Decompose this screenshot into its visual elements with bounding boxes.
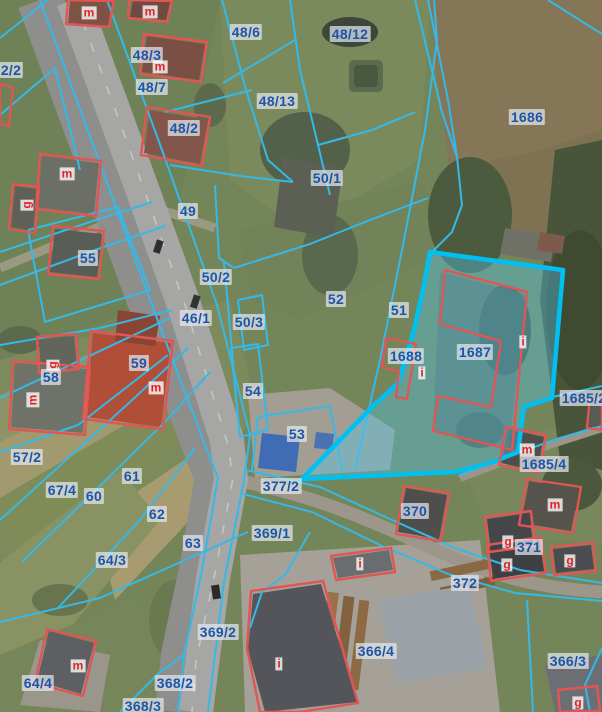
building-label-m[interactable]: m: [143, 5, 158, 18]
building-label-m[interactable]: m: [520, 443, 535, 456]
building-label-g[interactable]: g: [46, 359, 59, 370]
parcel-label-371[interactable]: 371: [515, 539, 543, 555]
parcel-label-369-2[interactable]: 369/2: [198, 624, 239, 640]
parcel-label-46-1[interactable]: 46/1: [180, 310, 212, 326]
building-label-m[interactable]: m: [82, 6, 97, 19]
building-label-i[interactable]: i: [418, 366, 425, 379]
labels-layer: 2/248/348/648/1248/748/1348/2168650/1495…: [0, 0, 602, 712]
parcel-label-368-3[interactable]: 368/3: [123, 698, 164, 712]
parcel-label-48-12[interactable]: 48/12: [330, 26, 371, 42]
parcel-label-54[interactable]: 54: [243, 383, 263, 399]
parcel-label-63[interactable]: 63: [183, 535, 203, 551]
parcel-label-50-2[interactable]: 50/2: [200, 269, 232, 285]
parcel-label-49[interactable]: 49: [178, 203, 198, 219]
building-label-g[interactable]: g: [501, 558, 512, 571]
parcel-label-1687[interactable]: 1687: [457, 344, 493, 360]
parcel-label-51[interactable]: 51: [389, 302, 409, 318]
parcel-label-58[interactable]: 58: [41, 369, 61, 385]
building-label-g[interactable]: g: [20, 199, 33, 210]
building-label-m[interactable]: m: [149, 381, 164, 394]
building-label-i[interactable]: i: [519, 335, 526, 348]
parcel-label-368-2[interactable]: 368/2: [155, 675, 196, 691]
building-label-g[interactable]: g: [502, 535, 513, 548]
parcel-label-55[interactable]: 55: [78, 250, 98, 266]
parcel-label-1685-4[interactable]: 1685/4: [520, 456, 569, 472]
parcel-label-377-2[interactable]: 377/2: [261, 478, 302, 494]
parcel-label-48-6[interactable]: 48/6: [230, 24, 262, 40]
parcel-label-1686[interactable]: 1686: [509, 109, 545, 125]
building-label-g[interactable]: g: [564, 554, 575, 567]
parcel-label-372[interactable]: 372: [451, 575, 479, 591]
parcel-label-48-13[interactable]: 48/13: [257, 93, 298, 109]
parcel-label-64-4[interactable]: 64/4: [22, 675, 54, 691]
building-label-i[interactable]: i: [356, 557, 363, 570]
parcel-label-50-1[interactable]: 50/1: [311, 170, 343, 186]
parcel-label-48-2[interactable]: 48/2: [168, 120, 200, 136]
parcel-label-48-7[interactable]: 48/7: [136, 79, 168, 95]
cadastral-map[interactable]: 2/248/348/648/1248/748/1348/2168650/1495…: [0, 0, 602, 712]
parcel-label-53[interactable]: 53: [287, 426, 307, 442]
parcel-label-67-4[interactable]: 67/4: [46, 482, 78, 498]
parcel-label-369-1[interactable]: 369/1: [252, 525, 293, 541]
building-label-m[interactable]: m: [548, 498, 563, 511]
parcel-label-52[interactable]: 52: [326, 291, 346, 307]
parcel-label-61[interactable]: 61: [122, 468, 142, 484]
parcel-label-59[interactable]: 59: [129, 355, 149, 371]
parcel-label-1685-2[interactable]: 1685/2: [560, 390, 602, 406]
building-label-i[interactable]: i: [275, 657, 282, 670]
parcel-label-50-3[interactable]: 50/3: [233, 314, 265, 330]
parcel-label-64-3[interactable]: 64/3: [96, 552, 128, 568]
parcel-label-60[interactable]: 60: [84, 488, 104, 504]
building-label-g[interactable]: g: [572, 696, 583, 709]
building-label-m[interactable]: m: [153, 60, 168, 73]
parcel-label-366-4[interactable]: 366/4: [356, 643, 397, 659]
parcel-label-366-3[interactable]: 366/3: [548, 653, 589, 669]
building-label-m[interactable]: m: [26, 393, 39, 408]
parcel-label-57-2[interactable]: 57/2: [11, 449, 43, 465]
building-label-m[interactable]: m: [60, 167, 75, 180]
parcel-label-370[interactable]: 370: [401, 503, 429, 519]
parcel-label-62[interactable]: 62: [147, 506, 167, 522]
parcel-label-2-2[interactable]: 2/2: [0, 62, 23, 78]
building-label-m[interactable]: m: [71, 659, 86, 672]
parcel-label-1688[interactable]: 1688: [388, 348, 424, 364]
